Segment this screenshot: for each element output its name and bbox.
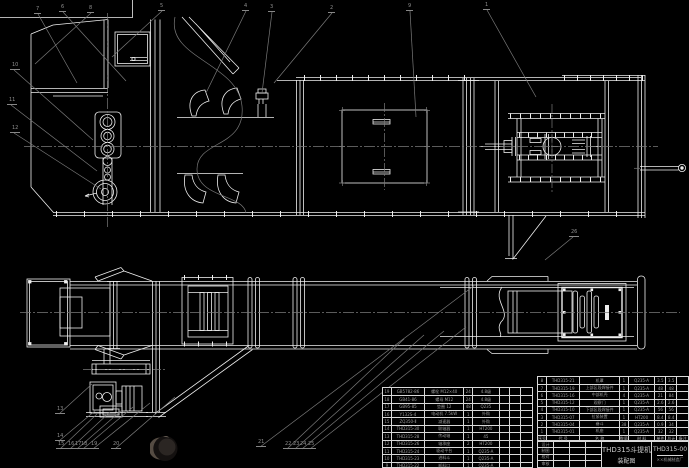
bom-cell: 19 [383, 388, 391, 395]
bom-cell: 4.8级 [472, 388, 498, 395]
bom-row: 9THD315-22卸料口1Q235-A [383, 462, 532, 468]
bom-cell: 38 [619, 421, 628, 427]
bom-cell: Q235 [472, 404, 498, 410]
bom-row: 19GB5782-86螺栓 M12×40244.8级 [383, 388, 532, 395]
centerlines [20, 13, 680, 370]
bom-cell [520, 426, 532, 432]
bom-cell [499, 448, 510, 454]
bom-cell: 18 [383, 396, 391, 402]
bom-row: 11THD315-24驱动平台1Q235-A [383, 447, 532, 454]
bom-cell [520, 418, 532, 424]
bom-cell: 32 [654, 428, 665, 434]
bom-cell: 4 [538, 407, 546, 413]
item-balloon: 11 [7, 98, 17, 105]
bom-cell: 48 [654, 385, 665, 391]
bom-cell: 45 [472, 433, 498, 439]
bom-cell: THD315-28 [391, 433, 424, 439]
bom-cell: 1 [538, 428, 546, 434]
bom-cell: 电动机 7.5kW [424, 411, 463, 417]
bom-cell: 1 [619, 377, 628, 384]
bom-cell [509, 388, 520, 395]
logo-watermark-icon [150, 434, 180, 463]
item-balloon: 26 [569, 230, 579, 237]
bom-cell: Q235-A [628, 392, 655, 398]
bom-cell [509, 448, 520, 454]
leader-lines [11, 10, 573, 449]
bom-cell: 螺母 M12 [424, 396, 463, 402]
bom-cell: 联轴器 [424, 426, 463, 432]
bom-cell [676, 392, 688, 398]
bom-cell: 24 [463, 396, 472, 402]
bom-cell [499, 433, 510, 439]
bom-cell: 84 [665, 392, 676, 398]
bucket [217, 175, 239, 203]
bom-row: 12THD315-26轴承座2HT200 [383, 440, 532, 447]
bom-cell [499, 411, 510, 417]
item-balloon: 6 [59, 5, 66, 12]
bom-cell: 1 [619, 400, 628, 406]
cad-drawing-viewport: 7685432911011121314151617181920212223242… [0, 0, 689, 468]
bom-cell: 56 [665, 407, 676, 413]
bom-row: 14THD315-30联轴器1HT200 [383, 425, 532, 432]
drawing-number: THD315-00 [653, 446, 687, 453]
bom-cell: 轴承座 [424, 441, 463, 447]
bom-cell [509, 396, 520, 402]
bom-cell [520, 448, 532, 454]
bom-cell: THD315-23 [391, 455, 424, 461]
bom-cell: 2.6 [665, 400, 676, 406]
bom-cell: THD315-01 [546, 428, 580, 434]
item-balloon: 18 [79, 442, 89, 449]
item-balloon: 5 [158, 4, 165, 11]
bom-cell: THD315-21 [546, 377, 580, 384]
item-balloon: 7 [34, 7, 41, 14]
bom-row: 17GB95-85垫圈 1248Q235 [383, 403, 532, 410]
item-balloon: 13 [55, 407, 65, 414]
bom-cell: 畚斗 [579, 421, 618, 427]
bom-cell [509, 463, 520, 468]
bom-cell: 8 [538, 377, 546, 384]
bom-row: 15ZQ350-Ⅱ减速器1外购 [383, 417, 532, 424]
bom-cell: THD315-16 [546, 392, 580, 398]
bom-cell: Q235-A [628, 400, 655, 406]
bom-cell: GB95-85 [391, 404, 424, 410]
bom-cell: 11 [383, 448, 391, 454]
bom-cell [509, 418, 520, 424]
bom-cell [499, 441, 510, 447]
bom-cell: 32 [665, 428, 676, 434]
bom-row: 13THD315-28传动轴145 [383, 432, 532, 439]
bom-cell: 5 [538, 400, 546, 406]
bom-cell: Q235-A [472, 463, 498, 468]
item-balloon: 19 [89, 442, 99, 449]
item-balloon: 21 [256, 440, 266, 447]
elevation-view [31, 17, 686, 259]
bom-cell: 上部区段焊接件 [579, 385, 618, 391]
bom-cell: 3 [538, 414, 546, 420]
bom-row: 3THD315-07拉紧装置1HT2008.48.4 [538, 413, 688, 420]
bom-cell: 2.6 [654, 400, 665, 406]
bom-row: 7THD315-19上部区段焊接件1Q235-A4848 [538, 384, 688, 391]
bom-cell: 下部区段焊接件 [579, 407, 618, 413]
bom-cell: 34 [665, 421, 676, 427]
item-balloon: 20 [111, 442, 121, 449]
bom-cell: GB41-86 [391, 396, 424, 402]
bom-cell: 观察门 [579, 400, 618, 406]
bom-cell: Q235-A [628, 407, 655, 413]
bom-cell: Q235-A [628, 377, 655, 384]
bom-row: 2THD315-04畚斗38Q235-A0.934 [538, 420, 688, 427]
company-name: ××机械制造厂 [657, 455, 684, 463]
bom-cell [520, 463, 532, 468]
bom-cell [509, 455, 520, 461]
bom-cell: 1 [463, 433, 472, 439]
bom-cell [509, 411, 520, 417]
bom-cell: GB5782-86 [391, 388, 424, 395]
bom-cell: 1 [463, 448, 472, 454]
bom-cell [520, 455, 532, 461]
bom-cell: Q235-A [628, 421, 655, 427]
bom-row: 5THD315-12观察门1Q235-A2.62.6 [538, 399, 688, 406]
bom-cell: ZQ350-Ⅱ [391, 418, 424, 424]
bom-cell: THD315-22 [391, 463, 424, 468]
bom-cell: 3.5 [654, 377, 665, 384]
bom-cell: THD315-19 [546, 385, 580, 391]
bom-cell: 21 [654, 392, 665, 398]
item-balloon: 10 [10, 63, 20, 70]
item-balloon: 9 [406, 4, 413, 11]
bom-cell: HT200 [628, 414, 655, 420]
signature-label: 审核 [538, 461, 554, 467]
bom-cell: 机座 [579, 428, 618, 434]
bom-row: 6THD315-16中部机壳4Q235-A2184 [538, 391, 688, 398]
bom-cell: 12 [383, 441, 391, 447]
bom-cell: 拉紧装置 [579, 414, 618, 420]
bom-cell: Q235-A [628, 428, 655, 434]
bom-cell: 外购 [472, 418, 498, 424]
bom-cell: 13 [383, 433, 391, 439]
drawing-subtitle: 装配图 [617, 456, 635, 465]
bom-cell [520, 433, 532, 439]
bom-cell: THD315-30 [391, 426, 424, 432]
item-balloon: 1 [483, 3, 490, 10]
drawing-title-cell: THD315斗提机 装配图 [602, 442, 652, 467]
signature-blank-cell [554, 461, 570, 467]
bom-cell: Y132S-4 [391, 411, 424, 417]
bom-cell [499, 426, 510, 432]
bom-cell [499, 418, 510, 424]
bom-cell: 56 [654, 407, 665, 413]
bom-cell: 中部机壳 [579, 392, 618, 398]
bom-cell: 16 [383, 411, 391, 417]
bom-cell [509, 404, 520, 410]
bom-cell: 1 [463, 418, 472, 424]
bom-cell: 1 [619, 428, 628, 434]
bom-row: 10THD315-23进料斗1Q235-A [383, 454, 532, 461]
bom-cell: 7 [538, 385, 546, 391]
bom-cell [499, 396, 510, 402]
bom-cell: THD315-24 [391, 448, 424, 454]
bom-cell: 17 [383, 404, 391, 410]
bom-row: 8THD315-21机罩1Q235-A3.53.5 [538, 377, 688, 384]
title-block: 设计制图校对审核 THD315斗提机 装配图 THD315-00 ××机械制造厂 [537, 441, 689, 468]
drawing-title: THD315斗提机 [602, 445, 651, 455]
bom-cell [676, 385, 688, 391]
bucket [184, 175, 206, 203]
bom-cell: 8.4 [654, 414, 665, 420]
signature-grid: 设计制图校对审核 [538, 442, 602, 467]
bom-cell: 14 [383, 426, 391, 432]
bom-cell: 15 [383, 418, 391, 424]
bom-cell: 1 [619, 414, 628, 420]
bom-cell [676, 400, 688, 406]
bom-cell: 3.5 [665, 377, 676, 384]
bucket [190, 90, 209, 116]
bom-cell: 机罩 [579, 377, 618, 384]
bom-cell: THD315-26 [391, 441, 424, 447]
bom-cell: 卸料口 [424, 463, 463, 468]
bom-cell: HT200 [472, 441, 498, 447]
bom-cell [499, 388, 510, 395]
bom-cell: 1 [463, 455, 472, 461]
bom-cell: THD315-10 [546, 407, 580, 413]
bom-cell [676, 421, 688, 427]
bom-row: 4THD315-10下部区段焊接件1Q235-A5656 [538, 406, 688, 413]
signature-blank-cell [570, 461, 586, 467]
bom-cell: 1 [463, 411, 472, 417]
bom-cell [499, 404, 510, 410]
bom-cell: 4.8级 [472, 396, 498, 402]
bom-cell [520, 404, 532, 410]
bom-cell: THD315-07 [546, 414, 580, 420]
drive-unit [86, 349, 150, 417]
bom-cell: Q235-A [628, 385, 655, 391]
bom-cell: HT200 [472, 426, 498, 432]
bom-row: 16Y132S-4电动机 7.5kW1外购 [383, 410, 532, 417]
bom-cell: 48 [665, 385, 676, 391]
item-balloon: 4 [242, 4, 249, 11]
bom-row: 1THD315-01机座1Q235-A3232 [538, 427, 688, 434]
bom-cell: 6 [538, 392, 546, 398]
bom-cell: 8.4 [665, 414, 676, 420]
item-balloon: 15 [56, 442, 66, 449]
bom-cell: 外购 [472, 411, 498, 417]
bom-cell [676, 407, 688, 413]
bom-cell: 传动轴 [424, 433, 463, 439]
bom-cell: 1 [463, 426, 472, 432]
item-balloon: 25 [306, 442, 316, 449]
bom-cell: Q235-A [472, 448, 498, 454]
bom-cell [520, 411, 532, 417]
item-balloon: 2 [328, 6, 335, 13]
bom-cell: 1 [619, 385, 628, 391]
bom-cell: 10 [383, 455, 391, 461]
bom-cell [509, 426, 520, 432]
item-balloon: 3 [268, 5, 275, 12]
bom-cell: 48 [463, 404, 472, 410]
bom-cell: 24 [463, 388, 472, 395]
bom-cell: 螺栓 M12×40 [424, 388, 463, 395]
bom-cell: 进料斗 [424, 455, 463, 461]
bom-row: 18GB41-86螺母 M12244.8级 [383, 395, 532, 402]
bom-cell: 2 [538, 421, 546, 427]
bom-cell: THD315-12 [546, 400, 580, 406]
drawing-number-cell: THD315-00 ××机械制造厂 [652, 442, 688, 467]
item-balloon: 14 [55, 434, 65, 441]
bom-cell: 1 [463, 463, 472, 468]
bom-cell: 1 [619, 407, 628, 413]
bom-cell: THD315-04 [546, 421, 580, 427]
item-balloon: 8 [87, 6, 94, 13]
bom-cell [676, 414, 688, 420]
item-balloon: 12 [10, 126, 20, 133]
takeup-screw [640, 167, 679, 171]
bom-table-left: 19GB5782-86螺栓 M12×40244.8级18GB41-86螺母 M1… [382, 387, 533, 468]
sheet-frame-corner [0, 0, 133, 18]
bom-cell [520, 396, 532, 402]
bom-cell [509, 433, 520, 439]
bom-cell [520, 441, 532, 447]
bom-cell [676, 377, 688, 384]
bom-cell: 4 [619, 392, 628, 398]
bom-cell [499, 455, 510, 461]
bom-cell: 减速器 [424, 418, 463, 424]
bom-cell: 0.9 [654, 421, 665, 427]
bom-cell: 2 [463, 441, 472, 447]
bom-cell [520, 388, 532, 395]
bom-cell: 垫圈 12 [424, 404, 463, 410]
signature-blank-cell [586, 461, 602, 467]
bom-cell: 9 [383, 463, 391, 468]
bom-cell [509, 441, 520, 447]
bom-cell: 驱动平台 [424, 448, 463, 454]
bom-cell [676, 428, 688, 434]
bom-cell [499, 463, 510, 468]
bom-cell: Q235-A [472, 455, 498, 461]
bom-table-right: 8THD315-21机罩1Q235-A3.53.57THD315-19上部区段焊… [537, 376, 689, 441]
